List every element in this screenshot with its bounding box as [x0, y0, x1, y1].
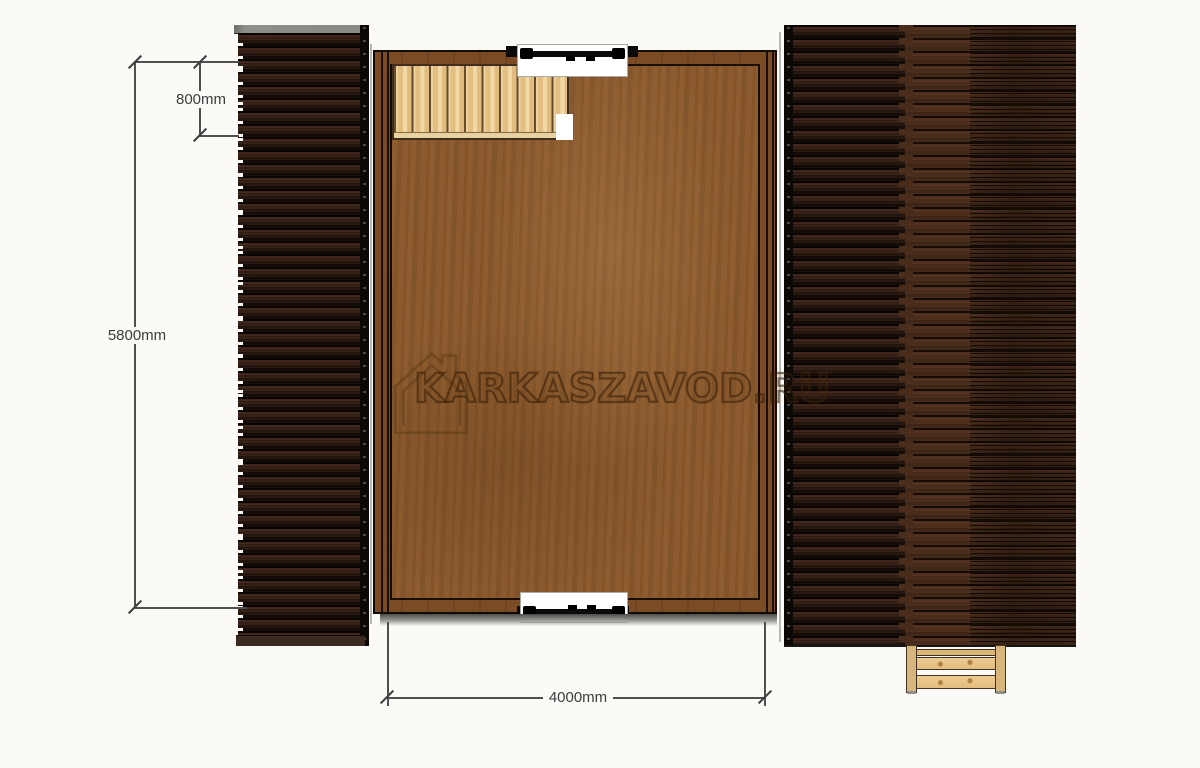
door-top-hinge-right [612, 48, 625, 59]
right-shadow-line [779, 32, 781, 642]
floor-plan-canvas: 5800mm 800mm 4000mm KARKASZAVOD.RU [0, 0, 1200, 768]
building-outline [373, 50, 777, 614]
door-top [517, 44, 628, 77]
door-top-clip [566, 56, 575, 61]
entry-steps [906, 645, 1006, 695]
dim-5800-label: 5800mm [104, 327, 170, 344]
steps-tread [916, 675, 996, 689]
main-floor [392, 66, 758, 598]
nail-marks [787, 27, 790, 647]
right-roof-eave-edge [784, 25, 793, 647]
left-roof-panel [238, 25, 369, 646]
left-roof-planks [238, 33, 369, 636]
left-shadow-line [370, 44, 372, 624]
dim-ext-top [135, 61, 239, 63]
door-bottom-clip [587, 605, 596, 610]
door-bottom-clip [568, 605, 577, 610]
left-roof-bottom-cap [236, 635, 365, 646]
dim-ext-mid [199, 135, 239, 137]
right-roof-plank-ends [899, 25, 913, 645]
left-roof-eave-edge [360, 25, 369, 646]
wall-right [760, 52, 775, 612]
steps-rail-right [995, 645, 1006, 693]
dim-4000-label: 4000mm [543, 689, 613, 706]
right-roof-panel [784, 25, 1076, 647]
dim-800-label: 800mm [172, 91, 230, 108]
building-drop-shadow [380, 614, 777, 626]
right-roof-plank-shading [970, 25, 1076, 645]
staircase-stringer [394, 132, 567, 138]
dim-ext-bottom [135, 607, 247, 609]
steps-top-rail [916, 649, 996, 656]
staircase-landing-gap [556, 114, 573, 140]
nail-marks [363, 27, 366, 646]
left-roof-plank-ends [238, 33, 243, 636]
right-roof-dark-planks [793, 25, 905, 645]
door-top-hinge-left [520, 48, 533, 59]
right-roof-brown-planks [905, 25, 1076, 645]
wall-left [375, 52, 390, 612]
steps-tread [916, 657, 996, 670]
door-top-clip [586, 56, 595, 61]
